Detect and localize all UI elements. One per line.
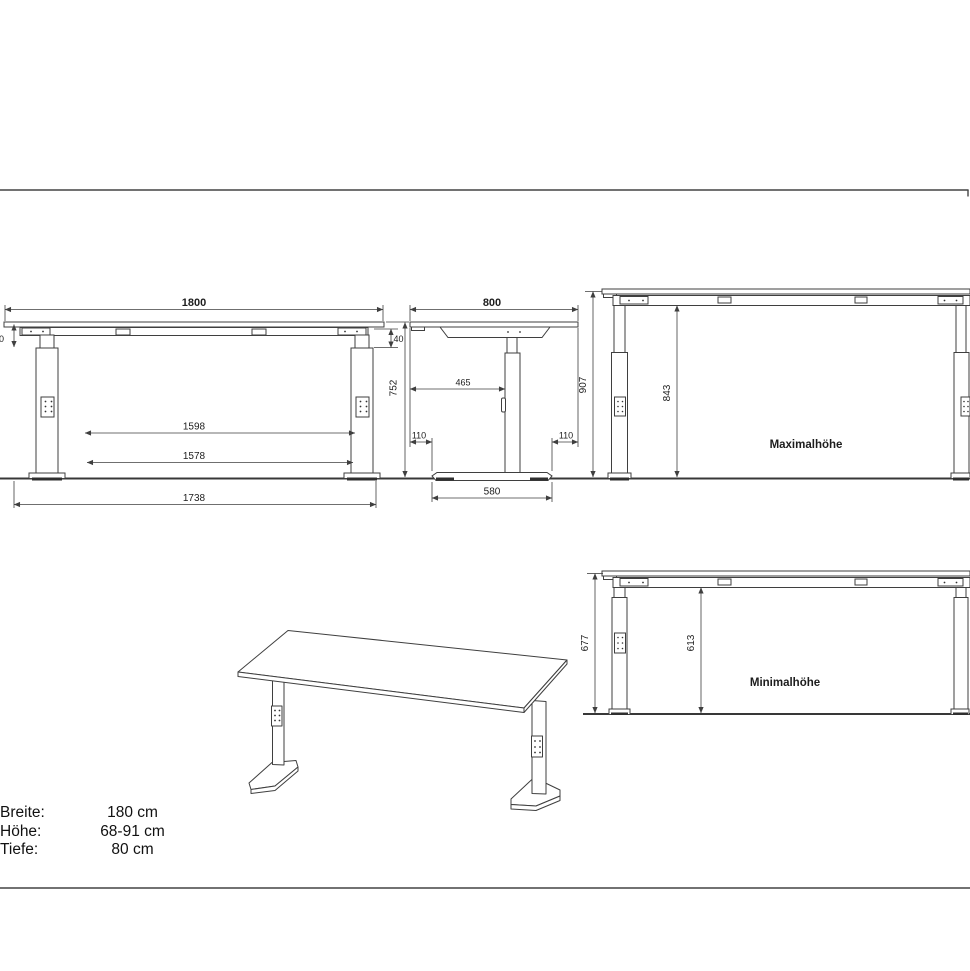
right-foot-pad [347,478,377,481]
dim-inner-bottom-label: 1578 [183,451,206,462]
spec-value-depth: 80 cm [70,841,195,860]
spec-value-height: 68-91 cm [70,823,195,842]
dim-back-overhang-110: 110 [552,328,578,471]
spec-row-width: Breite: 180 cm [0,804,195,823]
perspective-view [238,631,567,811]
left-leg-control-box [615,397,626,416]
dim-rail-height-right-label: 40 [394,334,404,344]
max-height-view [602,289,970,481]
dim-top-to-column-label: 465 [455,378,470,388]
column-lower [505,353,520,474]
rail-connector [252,329,266,335]
dim-total-height-label: 907 [578,376,589,393]
spec-value-width: 180 cm [70,804,195,823]
under-frame-rail [613,296,970,306]
dim-back-overhang-label: 110 [559,431,573,441]
rail-bracket-right [938,297,963,305]
right-leg-control-box [532,736,543,757]
max-height-view-label: Maximalhöhe [770,439,843,451]
rail-bracket-right [338,328,366,335]
right-leg-column [954,598,968,710]
under-frame-rail [20,328,368,336]
dim-depth-label: 800 [483,297,501,309]
desktop [410,322,578,327]
dim-under-frame-label: 843 [662,384,673,401]
side-view [410,322,578,481]
dim-total-height-677: 677 [580,574,603,714]
dim-base-length-label: 580 [484,487,501,498]
rail-connector [718,297,731,303]
top-bracket [440,327,550,338]
page-frame [0,190,970,888]
dim-total-height-label: 677 [580,634,591,651]
left-leg-joint [40,335,54,348]
dim-total-height-907: 907 [578,292,602,478]
left-leg-upper [614,588,625,598]
dim-front-overhang-label: 110 [412,431,426,441]
left-foot-pad [610,478,629,481]
dim-rail-height-right: 40 [374,329,404,348]
desktop-front-lip [412,327,425,331]
left-foot-pad [611,713,628,716]
left-leg-control-box [272,706,283,726]
desktop [602,571,970,576]
spec-label-width: Breite: [0,804,70,823]
dim-foot-span-label: 1738 [183,493,206,504]
rail-bracket-left [22,328,50,335]
dim-foot-span-1738: 1738 [14,481,376,508]
base-pad-front [436,478,454,481]
rail-connector [116,329,130,335]
rail-connector [718,579,731,585]
dim-base-length-580: 580 [432,482,552,502]
desktop [4,322,384,327]
dim-inner-width-bottom-1578: 1578 [87,451,353,463]
min-height-view-label: Minimalhöhe [750,677,820,689]
spec-label-height: Höhe: [0,823,70,842]
dim-under-frame-843: 843 [662,306,677,478]
base-pad-back [530,478,548,481]
left-leg-upper [614,306,625,353]
dim-width-1800: 1800 [5,297,383,321]
min-height-view [602,571,970,715]
rail-bracket-right [938,579,963,587]
spec-row-depth: Tiefe: 80 cm [0,841,195,860]
dim-front-overhang-110: 110 [410,431,432,472]
right-foot-pad [953,713,968,716]
right-leg-joint [355,335,369,348]
spec-label-depth: Tiefe: [0,841,70,860]
dim-depth-800: 800 [410,297,578,321]
dim-top-to-column-465: 465 [410,378,505,390]
left-foot-pad [32,478,62,481]
spec-table: Breite: 180 cm Höhe: 68-91 cm Tiefe: 80 … [0,804,195,860]
dim-inner-width-top-1598: 1598 [85,422,355,434]
dim-rail-height-left: 40 [0,325,14,348]
right-leg-upper [956,588,966,598]
right-leg-upper [956,306,966,353]
under-frame-rail [613,578,970,588]
dim-height-752: 752 [386,322,409,477]
left-leg-control-box [615,633,626,653]
desktop [602,289,970,294]
spec-row-height: Höhe: 68-91 cm [0,823,195,842]
dim-width-label: 1800 [182,297,206,309]
column-upper [507,338,517,354]
dim-inner-top-label: 1598 [183,422,206,433]
rail-connector [855,297,867,303]
column-handle [502,398,506,412]
dim-under-frame-label: 613 [686,634,697,651]
dim-height-label: 752 [389,379,400,396]
dim-under-frame-613: 613 [686,588,701,714]
right-foot-pad [953,478,969,481]
dim-rail-height-left-label: 40 [0,334,4,344]
rail-connector [855,579,867,585]
